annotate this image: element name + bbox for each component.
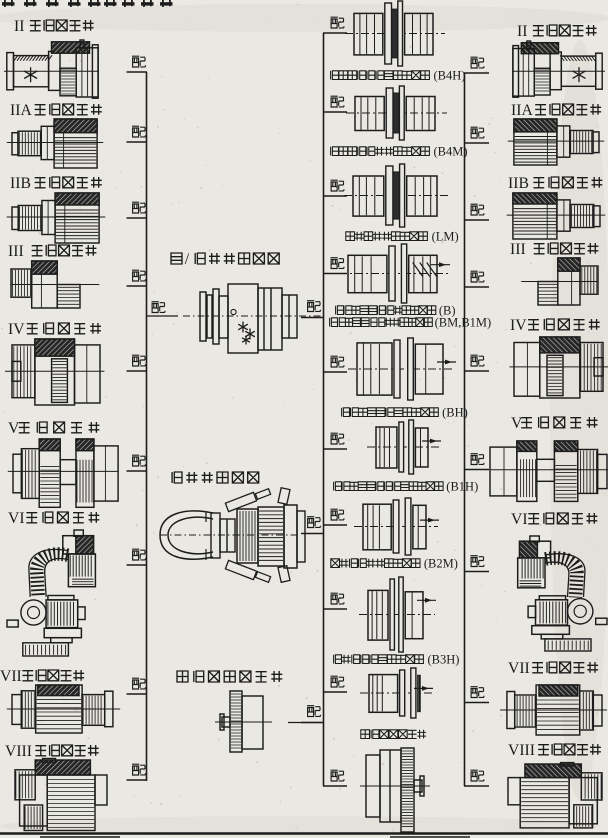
svg-text:III: III (510, 241, 526, 258)
svg-text:III: III (8, 243, 24, 260)
svg-text:VI: VI (8, 510, 25, 527)
svg-text:VII: VII (508, 660, 530, 677)
svg-text:(B2M): (B2M) (424, 557, 458, 571)
svg-text:VI: VI (511, 511, 528, 528)
svg-text:VIII: VIII (5, 743, 32, 760)
svg-text:(B4M): (B4M) (434, 145, 468, 159)
svg-text:(B3H): (B3H) (428, 653, 460, 667)
svg-text:(BH): (BH) (442, 406, 468, 420)
svg-text:IV: IV (8, 321, 25, 338)
svg-text:(B4H): (B4H) (434, 69, 466, 83)
svg-text:(B1H): (B1H) (446, 480, 478, 494)
svg-text:(BM,B1M): (BM,B1M) (435, 316, 492, 330)
svg-text:VIII: VIII (508, 742, 535, 759)
svg-text:V: V (511, 415, 523, 432)
svg-text:VII: VII (0, 668, 22, 685)
svg-text:V: V (8, 420, 20, 437)
svg-text:II: II (517, 23, 527, 40)
svg-text:(LM): (LM) (432, 230, 459, 244)
svg-text:IIB: IIB (508, 175, 529, 192)
svg-text:II: II (14, 18, 24, 35)
svg-text:IIB: IIB (10, 175, 31, 192)
svg-text:IIA: IIA (10, 102, 32, 119)
svg-text:IIA: IIA (511, 102, 533, 119)
svg-text:/: / (185, 251, 190, 268)
svg-text:IV: IV (510, 317, 527, 334)
